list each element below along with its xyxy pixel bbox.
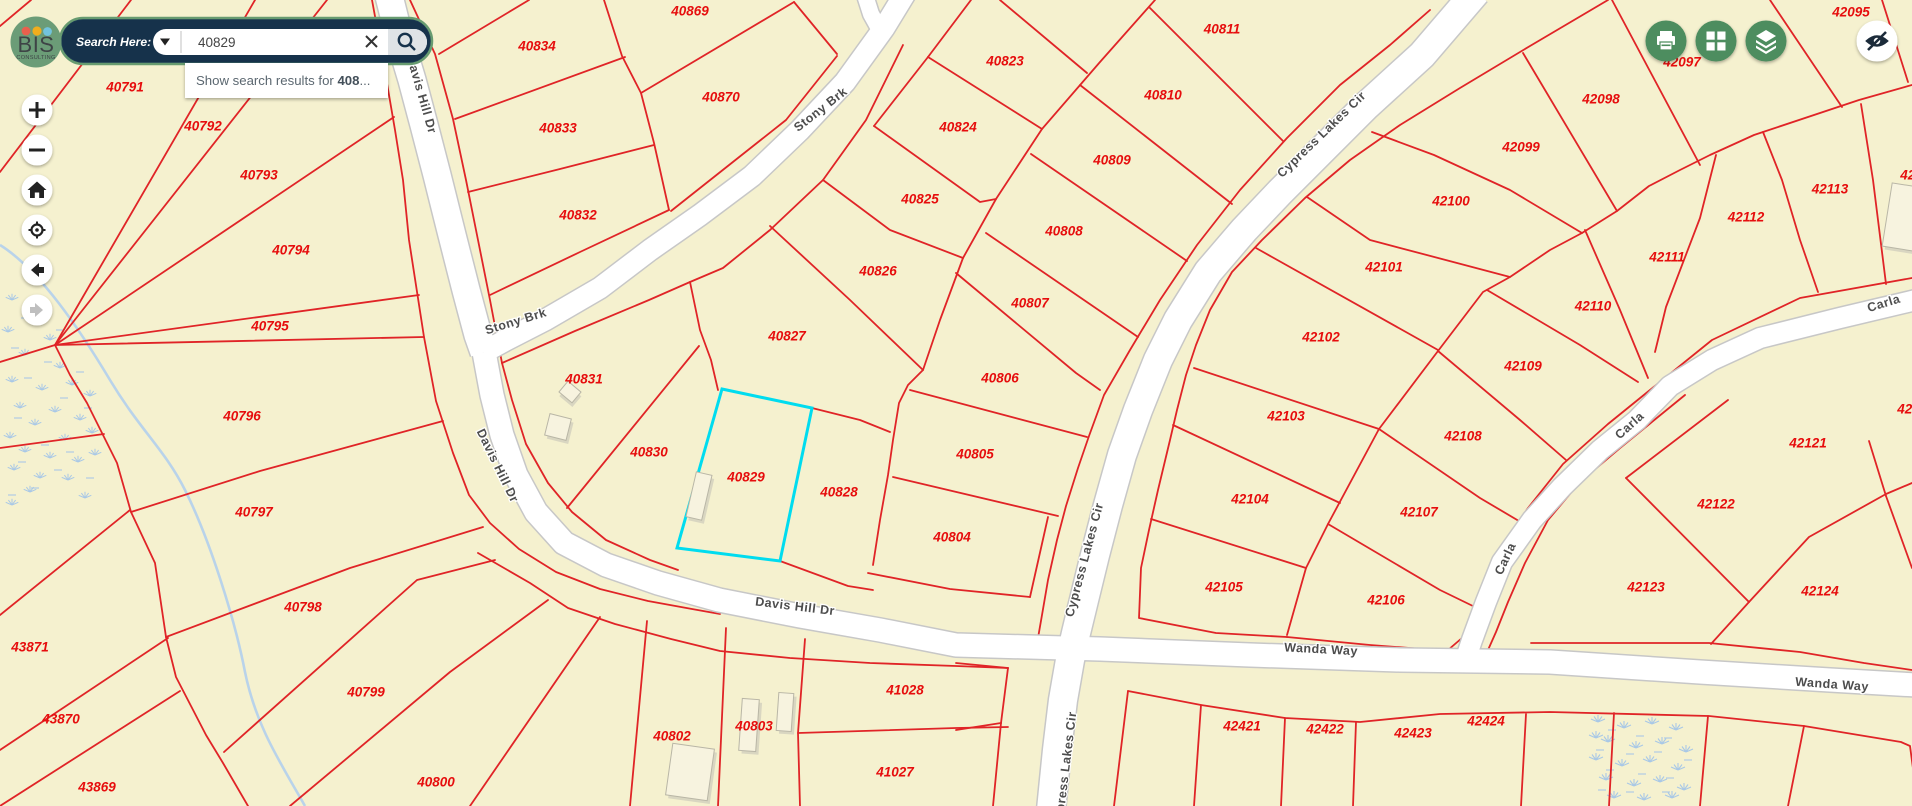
svg-text:40802: 40802 bbox=[652, 729, 691, 744]
svg-text:40830: 40830 bbox=[629, 445, 668, 460]
svg-text:42120: 42120 bbox=[1896, 402, 1912, 417]
svg-text:BIS: BIS bbox=[18, 32, 55, 57]
svg-text:40823: 40823 bbox=[985, 54, 1024, 69]
svg-text:40832: 40832 bbox=[558, 208, 597, 223]
svg-text:40829: 40829 bbox=[198, 35, 236, 50]
svg-text:40794: 40794 bbox=[271, 243, 310, 258]
svg-text:42124: 42124 bbox=[1800, 584, 1839, 599]
svg-text:40793: 40793 bbox=[239, 168, 278, 183]
svg-text:42121: 42121 bbox=[1788, 436, 1827, 451]
svg-text:40833: 40833 bbox=[538, 121, 577, 136]
svg-text:42107: 42107 bbox=[1399, 505, 1439, 520]
svg-text:40796: 40796 bbox=[222, 409, 261, 424]
svg-text:Show search results for 408...: Show search results for 408... bbox=[196, 73, 370, 88]
svg-text:42098: 42098 bbox=[1581, 92, 1620, 107]
svg-text:40800: 40800 bbox=[416, 775, 455, 790]
svg-text:42096: 42096 bbox=[1899, 168, 1912, 183]
svg-text:42102: 42102 bbox=[1301, 330, 1340, 345]
svg-text:40810: 40810 bbox=[1143, 88, 1182, 103]
svg-text:40792: 40792 bbox=[183, 119, 222, 134]
svg-text:40827: 40827 bbox=[767, 329, 807, 344]
svg-text:40791: 40791 bbox=[105, 80, 144, 95]
svg-text:CONSULTING: CONSULTING bbox=[16, 55, 55, 61]
svg-text:42103: 42103 bbox=[1266, 409, 1305, 424]
svg-text:42112: 42112 bbox=[1727, 210, 1765, 225]
svg-text:40803: 40803 bbox=[734, 719, 773, 734]
svg-text:40804: 40804 bbox=[932, 530, 971, 545]
svg-text:42109: 42109 bbox=[1503, 359, 1542, 374]
svg-text:40795: 40795 bbox=[250, 319, 289, 334]
svg-text:42100: 42100 bbox=[1431, 194, 1470, 209]
svg-text:40831: 40831 bbox=[564, 372, 603, 387]
svg-text:42106: 42106 bbox=[1366, 593, 1405, 608]
svg-text:42101: 42101 bbox=[1364, 260, 1403, 275]
svg-text:40869: 40869 bbox=[670, 4, 709, 19]
svg-text:43870: 43870 bbox=[41, 712, 80, 727]
svg-text:42108: 42108 bbox=[1443, 429, 1482, 444]
svg-text:40808: 40808 bbox=[1044, 224, 1083, 239]
svg-text:40806: 40806 bbox=[980, 371, 1019, 386]
svg-text:40797: 40797 bbox=[234, 505, 274, 520]
svg-text:40824: 40824 bbox=[938, 120, 977, 135]
svg-text:42122: 42122 bbox=[1696, 497, 1735, 512]
svg-text:40811: 40811 bbox=[1203, 22, 1241, 37]
svg-text:40807: 40807 bbox=[1010, 296, 1050, 311]
svg-text:Search Here:: Search Here: bbox=[76, 35, 151, 49]
svg-text:43869: 43869 bbox=[77, 780, 116, 795]
svg-text:42110: 42110 bbox=[1574, 299, 1612, 314]
svg-text:42123: 42123 bbox=[1626, 580, 1665, 595]
svg-text:40826: 40826 bbox=[858, 264, 897, 279]
svg-text:42421: 42421 bbox=[1222, 719, 1261, 734]
svg-text:42099: 42099 bbox=[1501, 140, 1540, 155]
svg-text:42111: 42111 bbox=[1648, 250, 1685, 265]
svg-text:42095: 42095 bbox=[1831, 5, 1870, 20]
svg-text:40809: 40809 bbox=[1092, 153, 1131, 168]
svg-text:40798: 40798 bbox=[283, 600, 322, 615]
svg-text:42113: 42113 bbox=[1811, 182, 1849, 197]
svg-text:41027: 41027 bbox=[875, 765, 915, 780]
svg-text:40828: 40828 bbox=[819, 485, 858, 500]
svg-text:42424: 42424 bbox=[1466, 714, 1505, 729]
svg-text:40799: 40799 bbox=[346, 685, 385, 700]
svg-text:43871: 43871 bbox=[10, 640, 49, 655]
svg-text:40825: 40825 bbox=[900, 192, 939, 207]
svg-text:40870: 40870 bbox=[701, 90, 740, 105]
svg-text:40829: 40829 bbox=[726, 470, 765, 485]
svg-text:40834: 40834 bbox=[517, 39, 556, 54]
svg-text:42105: 42105 bbox=[1204, 580, 1243, 595]
svg-text:40805: 40805 bbox=[955, 447, 994, 462]
svg-text:41028: 41028 bbox=[885, 683, 924, 698]
svg-text:42423: 42423 bbox=[1393, 726, 1432, 741]
svg-text:42422: 42422 bbox=[1305, 722, 1344, 737]
svg-text:42104: 42104 bbox=[1230, 492, 1269, 507]
